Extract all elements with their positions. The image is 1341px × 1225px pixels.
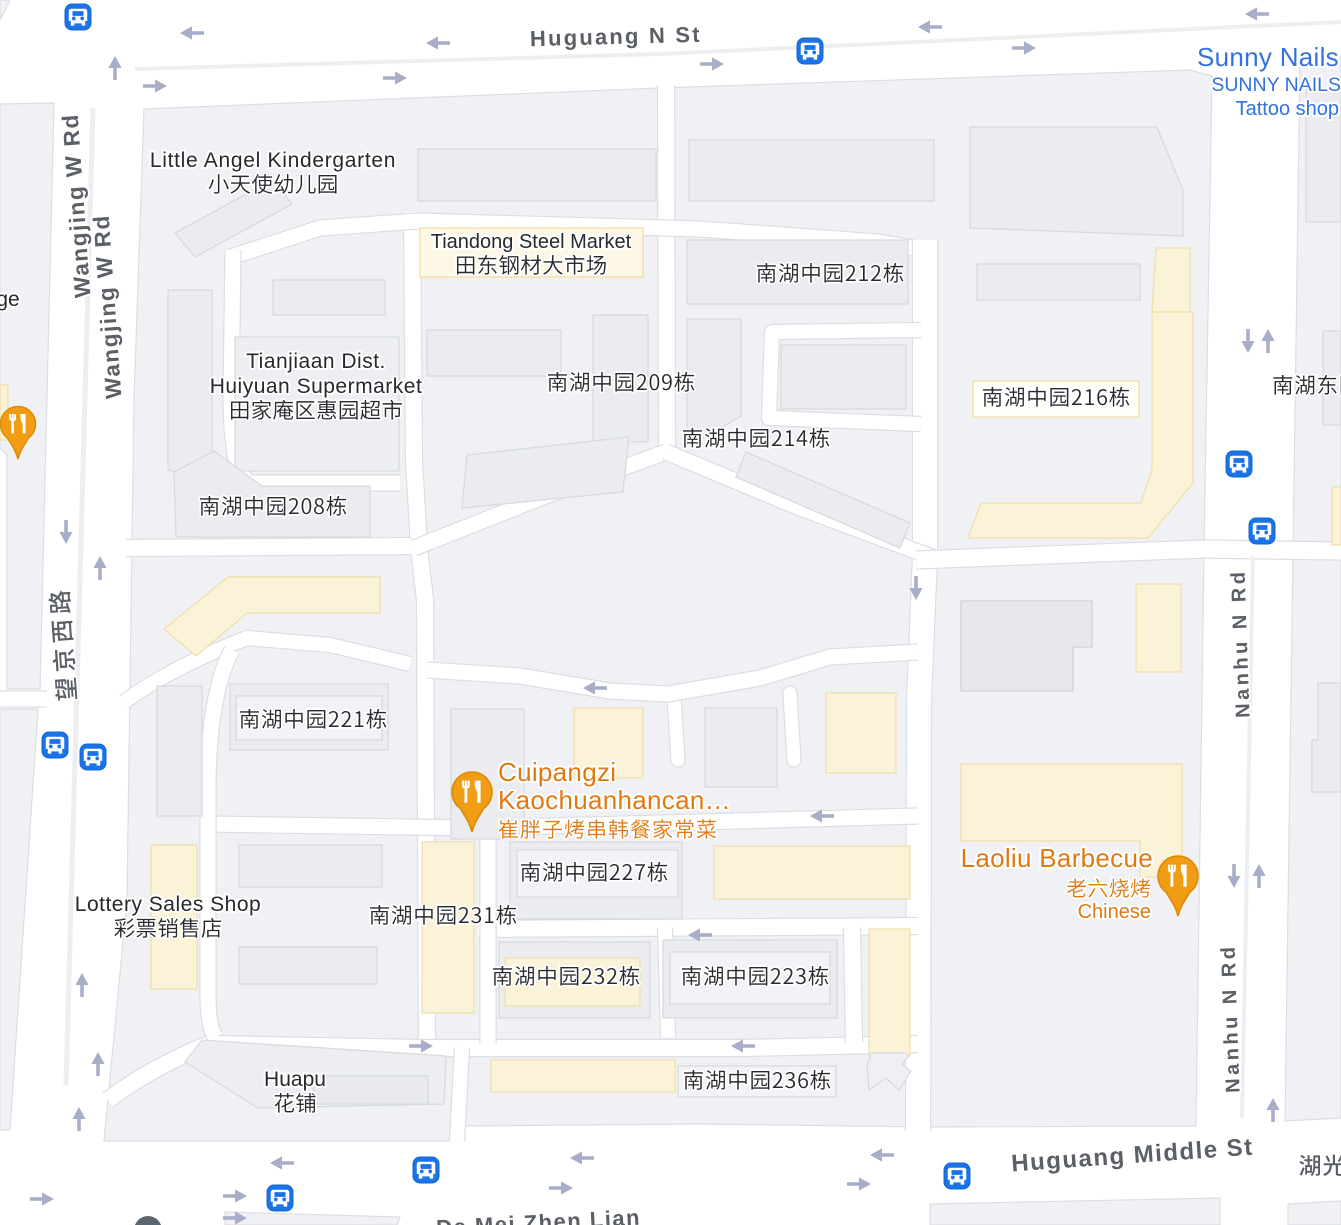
svg-text:Little Angel Kindergarten: Little Angel Kindergarten (150, 149, 396, 172)
svg-text:Tianjiaan Dist.: Tianjiaan Dist. (246, 350, 386, 373)
svg-text:Huapu: Huapu (264, 1068, 326, 1091)
svg-text:Kaochuanhancan…: Kaochuanhancan… (498, 785, 731, 815)
svg-text:Tiandong Steel Market: Tiandong Steel Market (431, 231, 632, 253)
svg-text:ge: ge (0, 288, 20, 311)
svg-text:Sunny Nails: Sunny Nails (1197, 42, 1339, 72)
svg-text:Huiyuan Supermarket: Huiyuan Supermarket (210, 375, 423, 398)
svg-text:Lottery Sales Shop: Lottery Sales Shop (75, 893, 261, 916)
svg-text:Huguang N St: Huguang N St (530, 22, 702, 51)
svg-text:Chinese: Chinese (1078, 901, 1151, 923)
svg-text:Tattoo shop: Tattoo shop (1236, 98, 1339, 120)
svg-text:SUNNY NAILS: SUNNY NAILS (1211, 74, 1341, 96)
svg-text:Cuipangzi: Cuipangzi (498, 757, 616, 787)
svg-text:Laoliu Barbecue: Laoliu Barbecue (961, 843, 1153, 873)
